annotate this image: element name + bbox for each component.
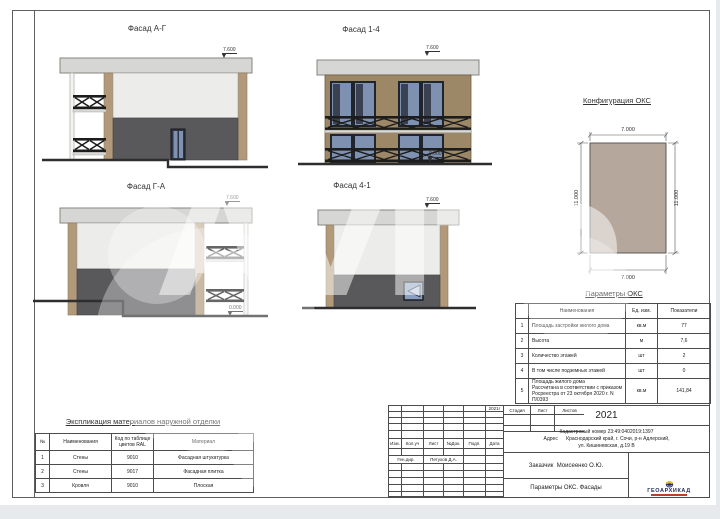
level-mark: 7.600 bbox=[222, 47, 237, 58]
tan-column bbox=[238, 73, 247, 160]
table-row: 2Высотам7,6 bbox=[516, 334, 711, 349]
col-header: Код по таблице цветов RAL bbox=[112, 434, 154, 451]
col-header: Наименования bbox=[50, 434, 112, 451]
tan-column bbox=[440, 225, 448, 308]
ground-line bbox=[42, 160, 268, 167]
col-header: Показатели bbox=[658, 304, 711, 319]
balcony-railing bbox=[73, 138, 106, 155]
explication-table: № Наименования Код по таблице цветов RAL… bbox=[35, 433, 254, 493]
balcony-railing bbox=[206, 246, 244, 262]
balcony-post bbox=[70, 73, 74, 160]
sig-header: №Док. bbox=[444, 439, 464, 449]
facade-4-1-title: Фасад 4-1 bbox=[333, 181, 370, 190]
table-row: 1Стены9010Фасадная штукатурка bbox=[36, 451, 254, 465]
signature-grid: 2021г Изм. Кол.уч Лист №Док. Подп. Дата … bbox=[389, 406, 504, 497]
table-row: 3Кровля9010Плоская bbox=[36, 479, 254, 493]
facade-1-4-title: Фасад 1-4 bbox=[342, 25, 379, 34]
level-mark: 7.600 bbox=[425, 197, 440, 208]
screenshot-root: Фасад А-Г Фасад 1-4 Фасад Г-А Фасад 4-1 … bbox=[0, 0, 720, 519]
facade-1-4-drawing bbox=[295, 40, 495, 175]
wall-lower bbox=[334, 275, 440, 308]
sig-header: Лист bbox=[424, 439, 444, 449]
client: Заказчик Моисеенко О.Ю. bbox=[504, 453, 629, 479]
parameters-title: Параметры ОКС bbox=[585, 289, 643, 298]
table-row: 1Площадь застройки жилого домакв.м77 bbox=[516, 319, 711, 334]
address: Адрес Краснодарский край, г. Сочи, р-н А… bbox=[544, 436, 670, 450]
logo-subtext-line bbox=[651, 494, 687, 496]
col-header: Наименования bbox=[529, 304, 626, 319]
configuration-title: Конфигурация ОКС bbox=[583, 96, 651, 105]
sig-header: Кол.уч bbox=[402, 439, 424, 449]
logo-text: ГЕОАРХИКАД bbox=[647, 489, 690, 494]
tan-column bbox=[326, 225, 334, 308]
document-title: Параметры ОКС. Фасады bbox=[504, 479, 629, 497]
roof-slab bbox=[318, 210, 459, 225]
facade-4-1-drawing bbox=[300, 193, 480, 323]
roof-slab bbox=[317, 60, 479, 75]
table-row: 5Площадь жилого дома Рассчитана в соотве… bbox=[516, 379, 711, 404]
dim-width-top: 7.000 bbox=[621, 127, 635, 133]
wall-upper bbox=[113, 73, 238, 118]
balcony-railing bbox=[73, 95, 106, 112]
balcony-post bbox=[244, 223, 248, 315]
dim-depth-left: 11.000 bbox=[574, 190, 580, 206]
explication-title: Экспликация материалов наружной отделки bbox=[66, 417, 220, 426]
sig-header: Изм. bbox=[389, 439, 402, 449]
wall-upper bbox=[77, 223, 195, 269]
tan-column bbox=[195, 223, 204, 315]
facade-g-a-title: Фасад Г-А bbox=[127, 182, 165, 191]
role-label: Ген.дир. bbox=[389, 456, 424, 464]
drawing-sheet: Фасад А-Г Фасад 1-4 Фасад Г-А Фасад 4-1 … bbox=[0, 0, 716, 505]
level-mark: 0.000 bbox=[428, 151, 443, 162]
configuration-plan: 7.000 7.000 11.000 11.000 bbox=[545, 108, 710, 283]
level-mark: 0.000 bbox=[228, 305, 243, 316]
wall-upper bbox=[334, 225, 440, 275]
level-mark: 7.600 bbox=[225, 195, 240, 206]
col-header: Ед. изм. bbox=[626, 304, 658, 319]
sig-header: Подп. bbox=[464, 439, 486, 449]
level-mark: 7.600 bbox=[425, 45, 440, 56]
roof-slab bbox=[60, 208, 252, 223]
dim-width-bottom: 7.000 bbox=[621, 275, 635, 281]
facade-a-g-drawing bbox=[40, 40, 270, 175]
sig-header: Дата bbox=[486, 439, 504, 449]
balcony-railing bbox=[206, 289, 244, 302]
building-footprint bbox=[590, 143, 666, 253]
project-year: 2021 bbox=[504, 406, 709, 426]
table-row: 3Количество этажейшт2 bbox=[516, 349, 711, 364]
col-header: Материал bbox=[154, 434, 254, 451]
cadastral-number: Кадастровый номер 23:49:0402019:1397 bbox=[560, 429, 654, 436]
title-block-right: 2021 Кадастровый номер 23:49:0402019:139… bbox=[504, 406, 709, 497]
roof-slab bbox=[60, 58, 252, 73]
wall-lower bbox=[77, 269, 195, 315]
company-logo: ГЕОАРХИКАД bbox=[629, 479, 709, 497]
role-name: Петухов Д.А. bbox=[424, 456, 464, 464]
small-window bbox=[404, 282, 423, 300]
col-header: № bbox=[36, 434, 50, 451]
facade-a-g-title: Фасад А-Г bbox=[128, 24, 166, 33]
tan-column bbox=[104, 73, 113, 160]
dim-depth-right: 11.000 bbox=[674, 190, 680, 206]
table-row: 4В том числе подземных этажейшт0 bbox=[516, 364, 711, 379]
address-block: Кадастровый номер 23:49:0402019:1397 Адр… bbox=[504, 426, 709, 453]
table-row: 2Стены9017Фасадная плитка bbox=[36, 465, 254, 479]
title-block: 2021г Изм. Кол.уч Лист №Док. Подп. Дата … bbox=[388, 405, 710, 498]
parameters-table: Наименования Ед. изм. Показатели 1Площад… bbox=[515, 303, 711, 404]
